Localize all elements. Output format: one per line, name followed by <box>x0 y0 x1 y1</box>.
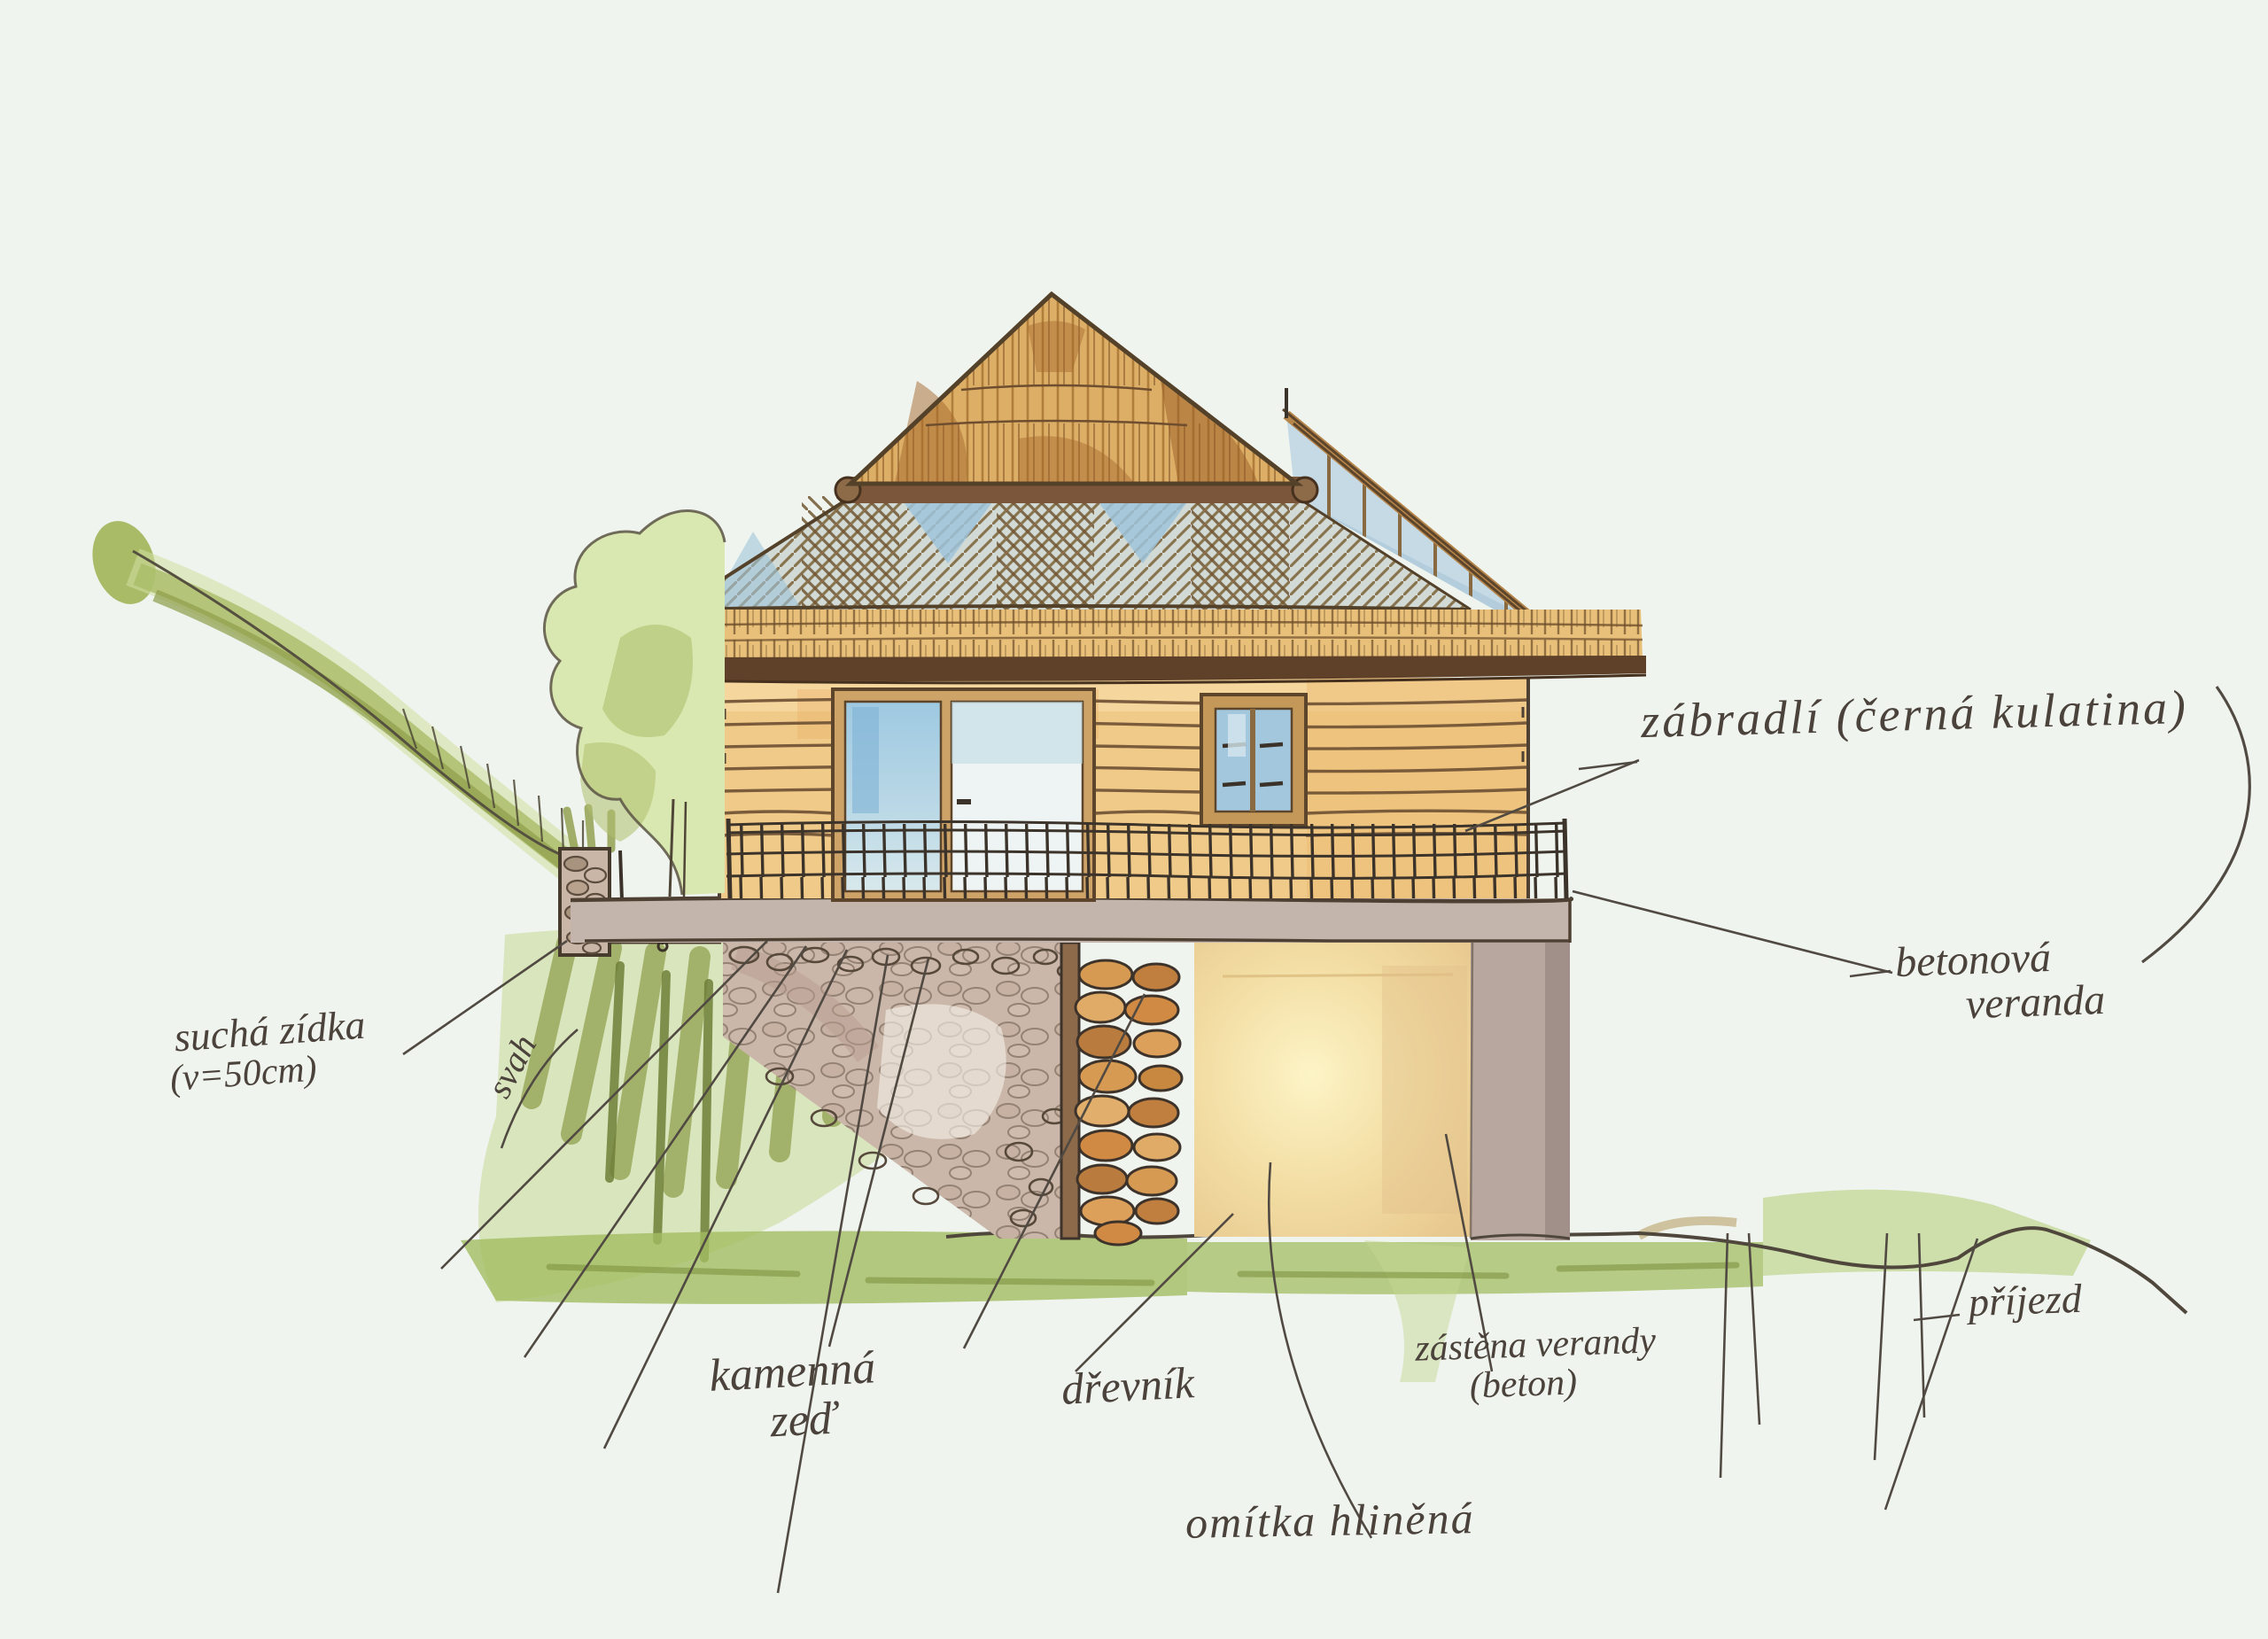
door-handle <box>957 799 971 804</box>
label-drevnik: dřevník <box>1060 1359 1195 1412</box>
label-prijezd: příjezd <box>1968 1278 2082 1324</box>
concrete-veranda-pillar <box>1471 943 1570 1240</box>
label-zastena-verandy: zástěna verandy (beton) <box>1415 1321 1658 1408</box>
roof-eave-band <box>657 610 1646 684</box>
sketch-canvas: zábradlí (černá kulatina) betonová veran… <box>0 0 2268 1639</box>
label-sucha-zidka: suchá zídka (v=50cm) <box>173 1004 369 1099</box>
clay-plaster-wall <box>1194 943 1471 1237</box>
small-window <box>1201 695 1306 826</box>
label-omitka-hlinena: omítka hliněná <box>1185 1495 1475 1546</box>
veranda-slab <box>571 897 1572 943</box>
label-betonova-veranda: betonová veranda <box>1894 934 2106 1030</box>
veranda-railing <box>726 819 1568 898</box>
label-kamenna-zed: kamenná zeď <box>708 1344 879 1449</box>
